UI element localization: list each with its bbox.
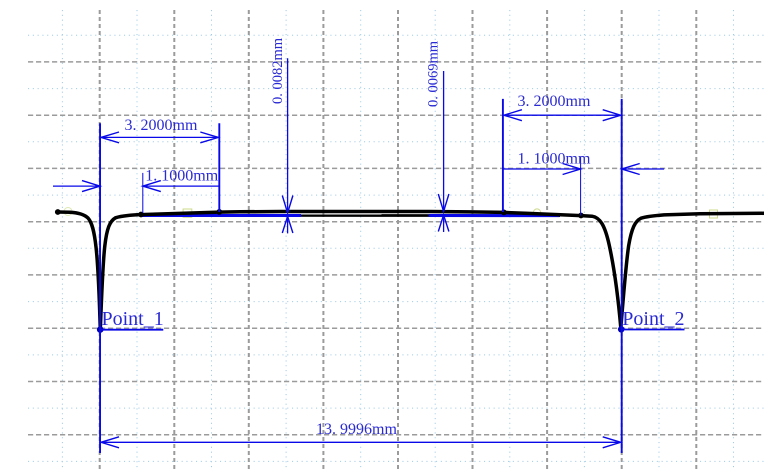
svg-text:1. 1000mm: 1. 1000mm <box>518 151 591 168</box>
svg-text:0. 0069mm: 0. 0069mm <box>426 40 442 107</box>
svg-text:Point_1: Point_1 <box>102 308 164 330</box>
svg-text:Point_2: Point_2 <box>622 308 684 330</box>
svg-text:1. 1000mm: 1. 1000mm <box>145 167 218 184</box>
svg-text:3. 2000mm: 3. 2000mm <box>125 117 198 134</box>
svg-text:13. 9996mm: 13. 9996mm <box>316 421 397 438</box>
svg-text:3. 2000mm: 3. 2000mm <box>518 93 591 110</box>
svg-text:0. 0082mm: 0. 0082mm <box>270 37 286 104</box>
